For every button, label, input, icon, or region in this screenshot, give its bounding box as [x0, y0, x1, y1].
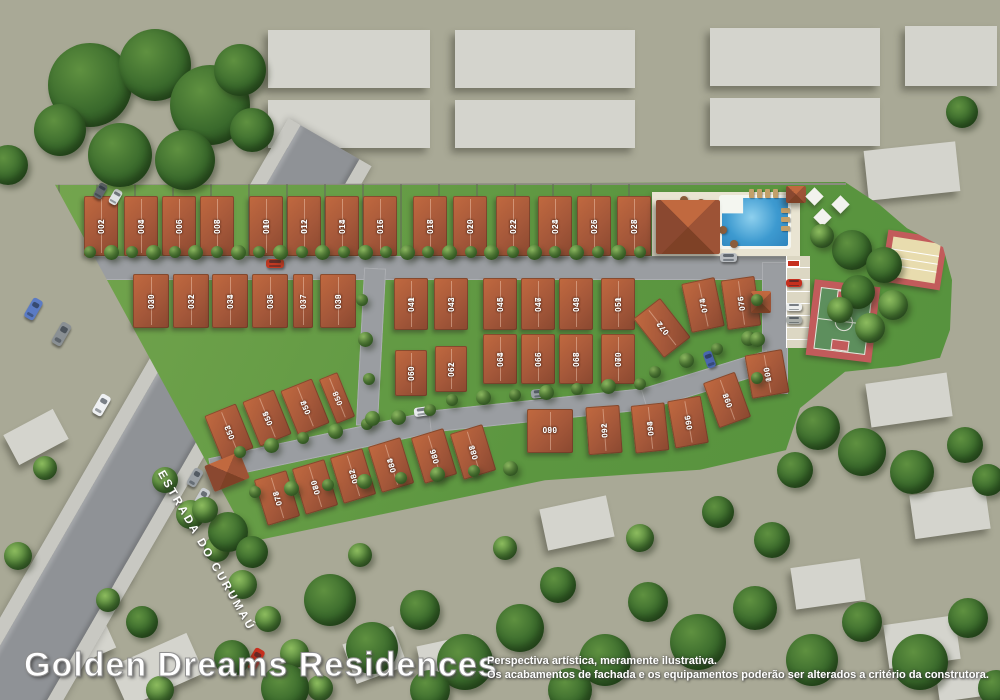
- tree: [188, 245, 203, 260]
- tree: [827, 297, 853, 323]
- tree: [391, 410, 406, 425]
- tree: [878, 290, 908, 320]
- tree: [315, 245, 330, 260]
- tree: [601, 379, 616, 394]
- tree: [626, 524, 654, 552]
- tree: [4, 542, 32, 570]
- tree: [356, 294, 368, 306]
- tree: [484, 245, 499, 260]
- tree: [947, 427, 983, 463]
- tree: [84, 246, 96, 258]
- tree: [476, 390, 491, 405]
- tree: [442, 245, 457, 260]
- tree: [569, 245, 584, 260]
- tree: [126, 606, 158, 638]
- tree: [297, 432, 309, 444]
- tree: [527, 245, 542, 260]
- tree: [155, 130, 215, 190]
- tree: [348, 543, 372, 567]
- tree: [358, 245, 373, 260]
- project-title: Golden Dreams Residences: [24, 646, 498, 685]
- site-plan-poster: 0010020030040050060070080090100110120130…: [0, 0, 1000, 700]
- tree: [509, 389, 521, 401]
- tree: [255, 606, 281, 632]
- tree: [338, 246, 350, 258]
- tree: [711, 343, 723, 355]
- tree: [169, 246, 181, 258]
- tree: [540, 567, 576, 603]
- tree: [33, 456, 57, 480]
- tree: [507, 246, 519, 258]
- tree: [322, 479, 334, 491]
- tree: [88, 123, 152, 187]
- tree: [751, 294, 763, 306]
- tree: [810, 224, 834, 248]
- tree: [549, 246, 561, 258]
- tree: [890, 450, 934, 494]
- tree: [357, 474, 372, 489]
- tree: [430, 467, 445, 482]
- tree: [496, 604, 544, 652]
- tree: [751, 372, 763, 384]
- tree: [424, 404, 436, 416]
- tree: [842, 602, 882, 642]
- disclaimer-text: Perspectiva artística, meramente ilustra…: [487, 654, 989, 682]
- tree: [733, 586, 777, 630]
- tree: [96, 588, 120, 612]
- tree: [34, 104, 86, 156]
- tree: [592, 246, 604, 258]
- tree: [192, 497, 218, 523]
- tree: [284, 481, 299, 496]
- tree: [395, 472, 407, 484]
- tree: [571, 383, 583, 395]
- tree: [972, 464, 1000, 496]
- tree: [493, 536, 517, 560]
- tree: [539, 385, 554, 400]
- tree: [363, 373, 375, 385]
- tree: [249, 486, 261, 498]
- tree: [230, 108, 274, 152]
- tree: [796, 406, 840, 450]
- tree: [866, 247, 902, 283]
- tree: [754, 522, 790, 558]
- tree: [611, 245, 626, 260]
- tree: [777, 452, 813, 488]
- tree: [304, 574, 356, 626]
- disclaimer-line-2: Os acabamentos de fachada e os equipamen…: [487, 668, 989, 682]
- tree: [422, 246, 434, 258]
- tree: [400, 245, 415, 260]
- tree: [126, 246, 138, 258]
- tree: [328, 424, 343, 439]
- tree: [702, 496, 734, 528]
- tree: [236, 536, 268, 568]
- tree: [628, 582, 668, 622]
- tree: [465, 246, 477, 258]
- tree: [503, 461, 518, 476]
- tree: [104, 245, 119, 260]
- tree: [634, 246, 646, 258]
- tree: [634, 378, 646, 390]
- tree: [296, 246, 308, 258]
- tree: [234, 446, 246, 458]
- tree: [468, 465, 480, 477]
- tree: [446, 394, 458, 406]
- tree: [855, 313, 885, 343]
- disclaimer-line-1: Perspectiva artística, meramente ilustra…: [487, 654, 989, 668]
- tree: [264, 438, 279, 453]
- tree: [750, 332, 765, 347]
- tree: [0, 145, 28, 185]
- tree: [380, 246, 392, 258]
- tree: [948, 598, 988, 638]
- tree: [679, 353, 694, 368]
- trees-layer: [0, 0, 1000, 700]
- tree: [400, 590, 440, 630]
- tree: [231, 245, 246, 260]
- tree: [214, 44, 266, 96]
- tree: [273, 245, 288, 260]
- tree: [358, 332, 373, 347]
- tree: [253, 246, 265, 258]
- tree: [146, 245, 161, 260]
- tree: [211, 246, 223, 258]
- tree: [946, 96, 978, 128]
- tree: [365, 411, 380, 426]
- tree: [649, 366, 661, 378]
- tree: [838, 428, 886, 476]
